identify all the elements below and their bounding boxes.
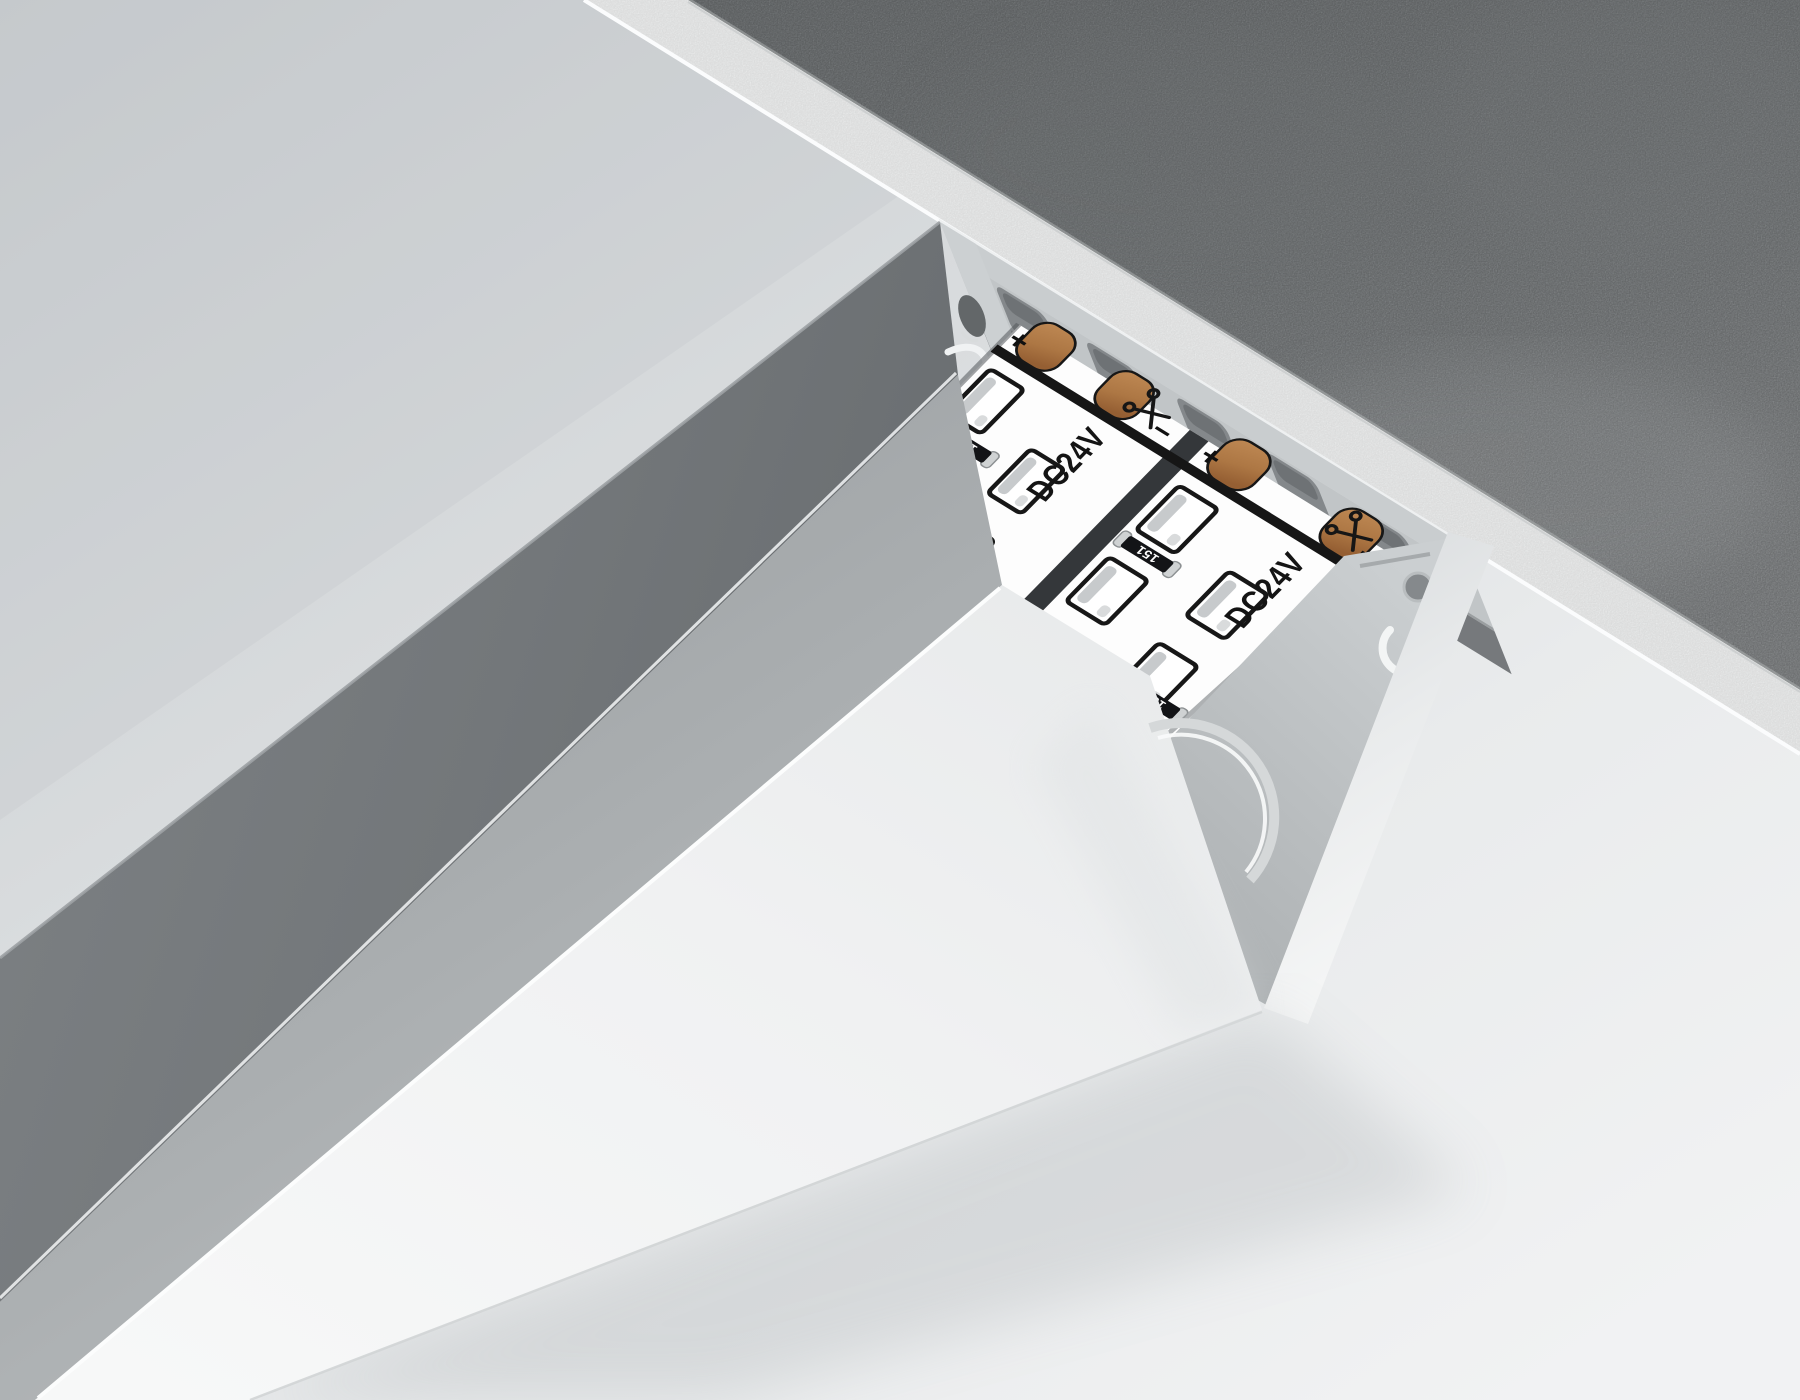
product-render-led-profile: 151 151 + − DC24V AMBRELLA LIGHT 151 [0, 0, 1800, 1400]
render-canvas: 151 151 + − DC24V AMBRELLA LIGHT 151 [0, 0, 1800, 1400]
